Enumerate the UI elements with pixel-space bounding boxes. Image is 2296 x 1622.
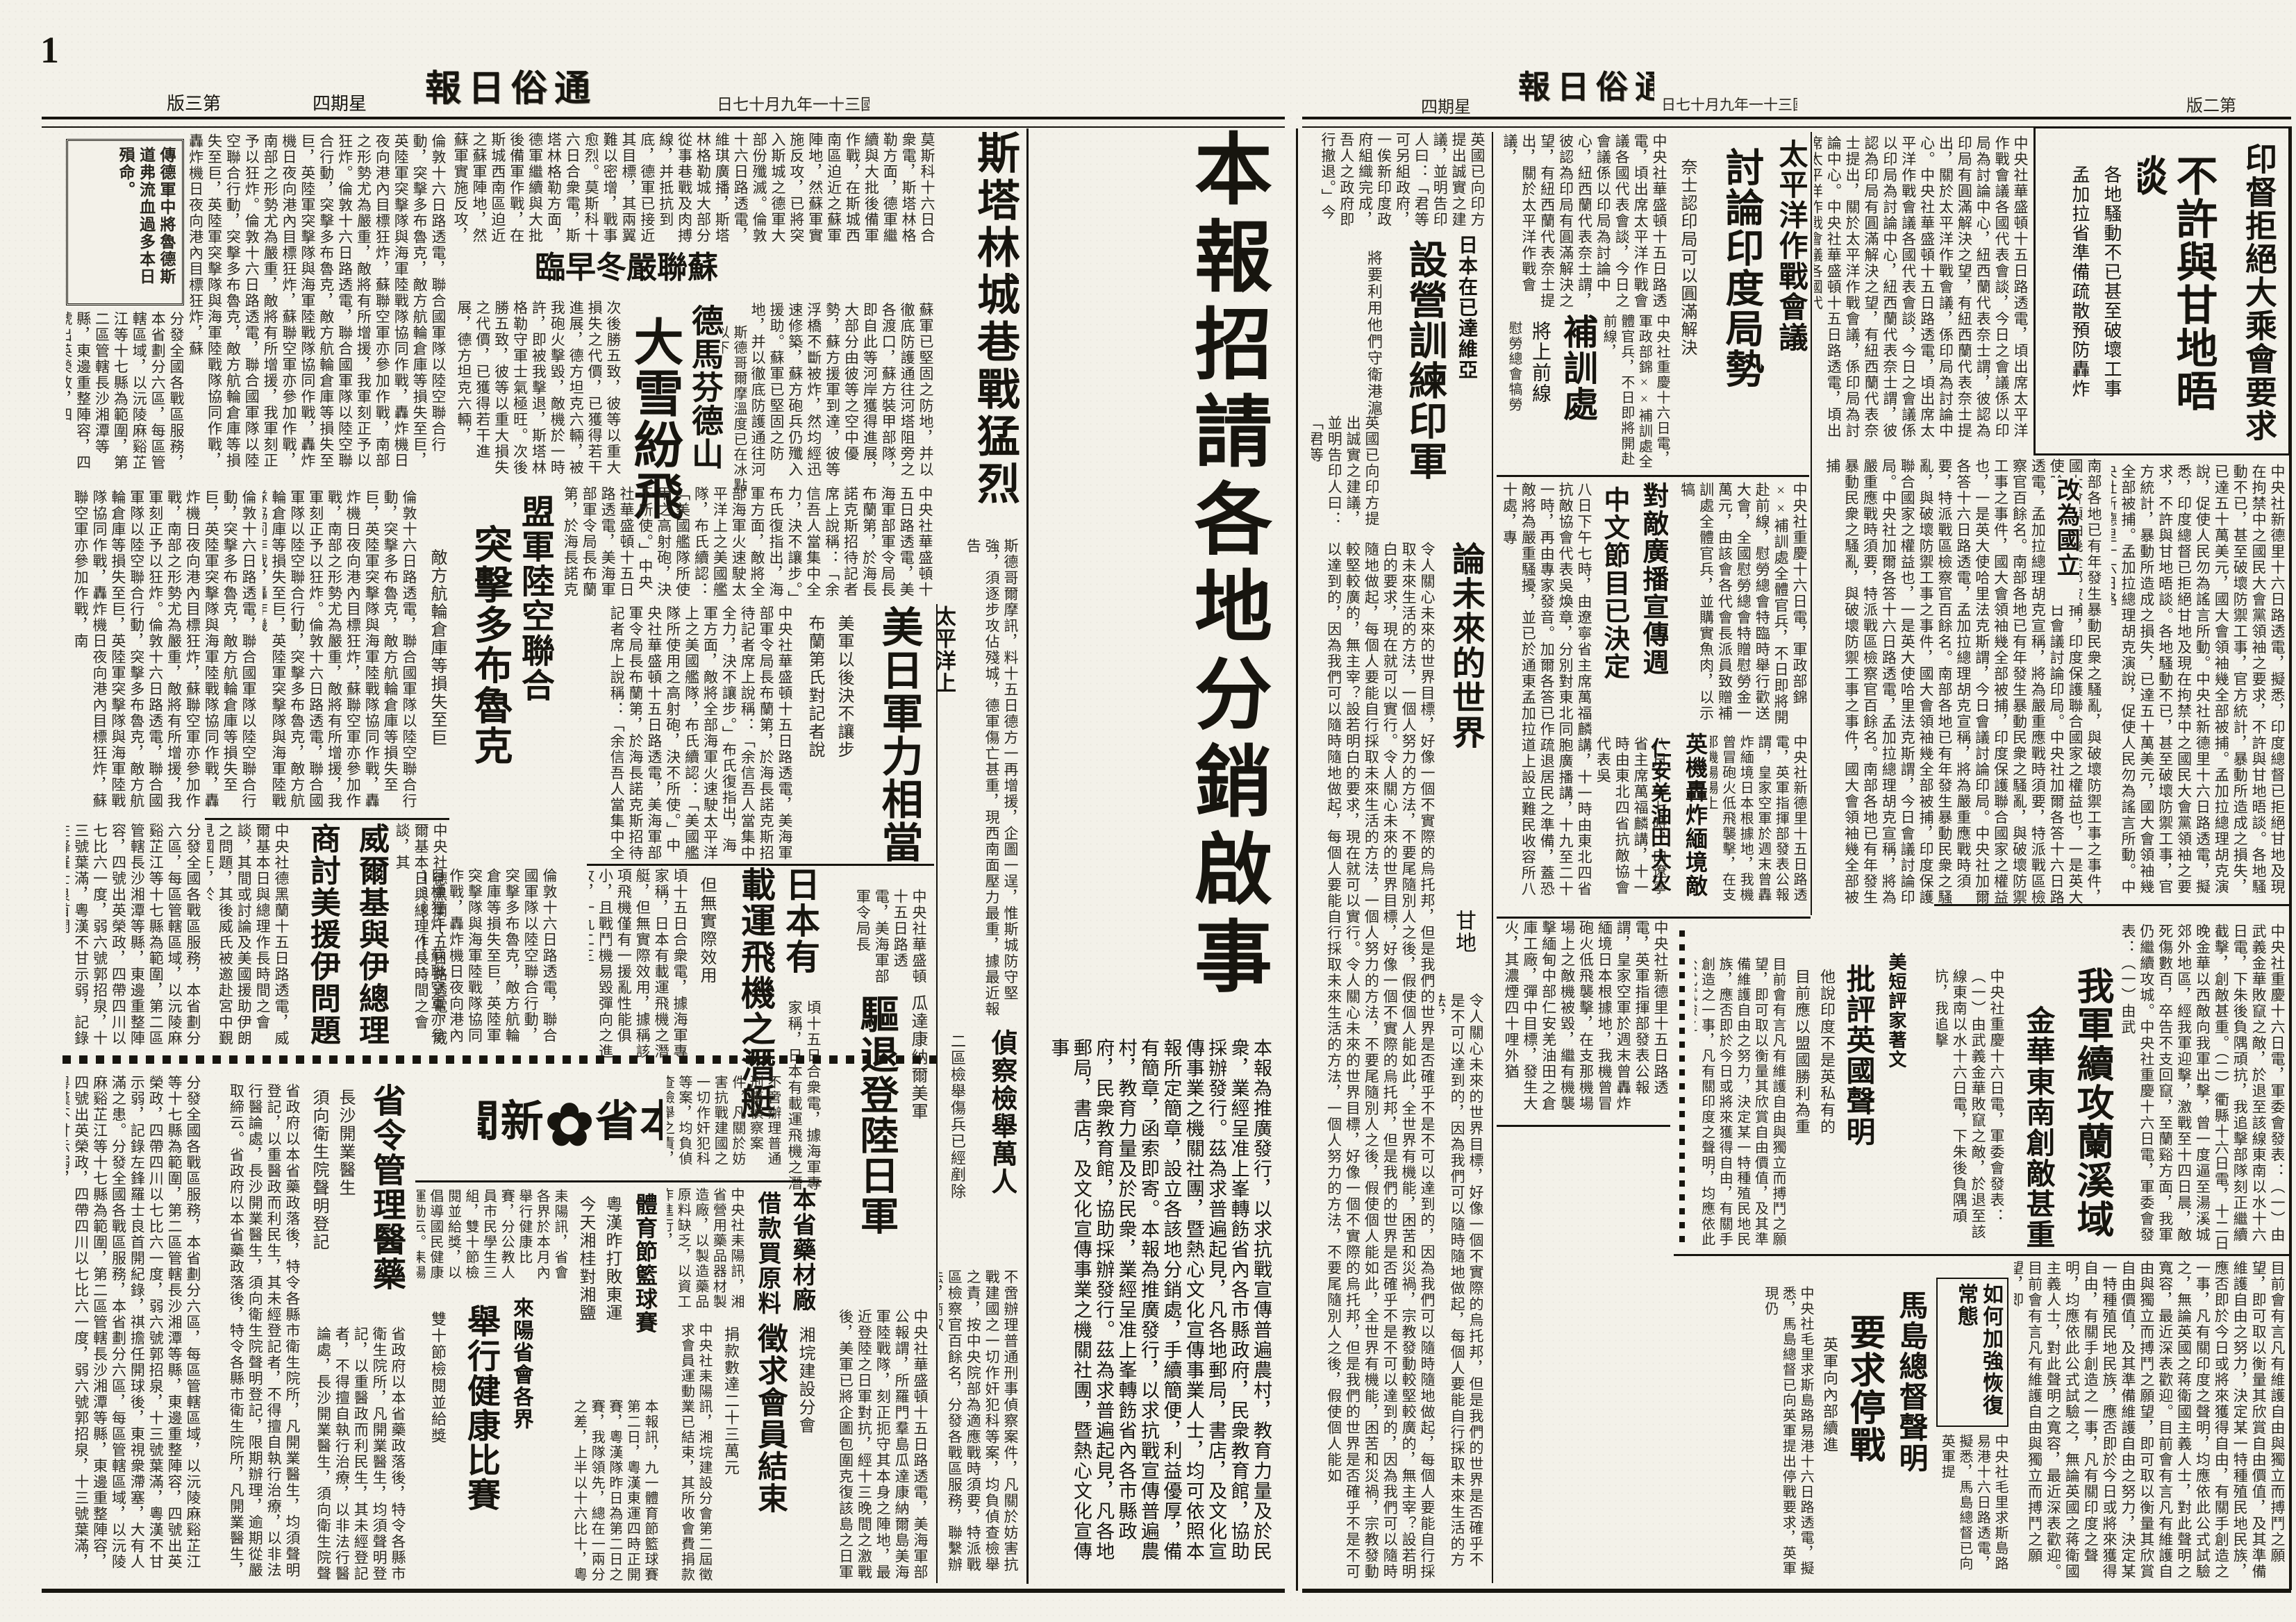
article-body: 中央社重慶十六日電，軍政部錦××補訓處全體官兵，不日即將開赴前線，慰勞總會特臨時… — [1675, 482, 1808, 726]
headline-willkie-premier: 威爾基與伊總理 — [346, 823, 389, 1053]
article-body: 中央社重慶十六日電，軍政部錦××補訓處全體官兵，不日即將開赴前線， — [1601, 314, 1670, 474]
subhead-tobruk-losses: 敵方航輪倉庫等損失至巨 — [422, 549, 447, 828]
article-body: 分發全國各戰區服務，本省劃分六區，每區管轄區域，以沅陵麻谿芷江等十七縣為範圍，第… — [66, 1075, 202, 1583]
section-rule — [205, 818, 449, 820]
page-edge-rule — [1296, 128, 1298, 1591]
section-rule — [415, 1180, 822, 1182]
subhead-changsha-doctors: 長沙開業醫生 — [332, 1089, 356, 1271]
headline-tobruk-raid: 突擊多布魯克 — [453, 524, 513, 859]
headline-jinhua-damage: 金華東南創敵甚重 — [2011, 1005, 2055, 1255]
article-body: 分發全國各戰區服務，本省劃分六區，每區管轄區域，以沅陵麻谿芷江等十七縣為範圍，第… — [66, 311, 185, 483]
headline-national-school: 改為國立 — [2047, 478, 2079, 605]
subhead-no-practical-use: 但無實際效用 — [692, 876, 717, 1072]
article-body: 斯德哥爾摩訊，料十五日德方一再增援，企圖一逞，惟斯城防守堅強，須逐步攻佔殘城，德… — [963, 538, 1020, 1017]
subhead-to-front: 將上前線 — [1526, 321, 1552, 433]
notice-box-restore: 如何加強恢復常態 — [1936, 1278, 2008, 1427]
gutter-rule — [1026, 128, 1029, 1584]
headline-no-gandhi-meeting: 不許與甘地晤談 — [2138, 154, 2218, 451]
headline-allied-joint: 盟軍陸空聯合 — [515, 494, 554, 822]
section-rule — [1497, 1125, 1670, 1127]
headline-attack-lanxi: 我軍續攻蘭溪域 — [2060, 967, 2114, 1253]
article-body: 中央社華盛頓十五日路透電，美海軍部軍令局長布蘭第，於海長諾克斯招待記者席上說稱：… — [587, 605, 794, 861]
headline-japan-has: 日本有 — [779, 867, 821, 993]
subhead-allied-victory-first: 目前應以盟國勝利為重 — [1789, 969, 1811, 1206]
notice-box-death: 傳德軍中將魯德斯道弗流血過多本日殞命。 — [66, 139, 184, 306]
column-rule — [936, 604, 938, 1583]
banner-distribution-notice: 本報招請各地分銷啟事 — [1083, 128, 1272, 1026]
headline-discuss-india: 討論印度局勢 — [1703, 147, 1764, 461]
headline-request-ceasefire: 要求停戰 — [1842, 1314, 1885, 1496]
byline-gandhi: 甘地 — [1448, 910, 1476, 980]
masthead-rule-left — [42, 117, 1285, 128]
subhead-nash-optimism: 奈士認印局可以圓滿解決 — [1672, 158, 1697, 451]
article-body: 倫敦十六日路透電，聯合國軍隊以陸空聯合行動，突擊多布魯克，敵方航輪倉庫等損失至巨… — [189, 133, 447, 480]
article-body: 省政府以本省藥政落後，特令各縣市衛生院所，凡開業醫生，均須聲明登記，以重醫政而利… — [207, 1083, 301, 1583]
headline-us-aid-iran: 商討美援伊問題 — [294, 823, 340, 1059]
badge-local-news-label: 聞新✿省本 — [478, 1096, 663, 1148]
headline-raf-bomb-burma: 英機轟炸緬境敵 — [1675, 733, 1708, 921]
headline-yenangyaung-fire: 仁安羌油田大火 — [1640, 737, 1671, 926]
article-body: 中央社毛里求斯島路易港十六日路透電，擬悉，馬島總督已向英軍提出停戰要求，英軍現仍 — [1764, 1286, 1814, 1583]
bottom-rule-right — [1302, 1589, 2291, 1593]
headline-stalingrad: 斯塔林城巷戰猛烈 — [960, 131, 1020, 533]
column-rule — [1811, 132, 1812, 915]
column-rule — [1492, 132, 1493, 1583]
flower-icon: ✿ — [545, 1094, 595, 1158]
ornament-rule — [1679, 930, 1685, 1250]
kicker-japan-batavia: 日本在已達維亞 — [1450, 235, 1478, 417]
section-rule — [1674, 1254, 2292, 1256]
article-body: 目前會有言凡有維護自由與獨立而搏鬥之願望，即可取以衡量其欣賞自由價值，及其準備維… — [2014, 1260, 2286, 1583]
headline-soviet-winter: 臨早冬嚴聯蘇 — [535, 250, 747, 294]
headline-chinese-program: 中文節目已決定 — [1597, 486, 1629, 730]
article-body: 不啻辦理普通刑事偵察案件，凡關於妨害抗戰建國之一切作奸犯科等案，均負偵查檢舉之責… — [939, 1269, 1020, 1583]
section-rule — [1934, 904, 2292, 906]
headline-madagascar-governor: 馬島總督聲明 — [1888, 1290, 1928, 1535]
article-body: 中央社新德里十五日路透電，英軍指揮部發表公報謂，皇家空軍於週末曾轟炸緬境日本根據… — [1710, 735, 1807, 917]
subhead-comfort-troops: 慰勞總會犒勞 — [1500, 321, 1522, 461]
article-body: 中央社華盛頓十五日路透電，美海軍部軍令局長布蘭第，於海長諾克斯招待記者席上說稱：… — [559, 486, 934, 601]
article-body: 中央社新德里十六日路透電，擬悉，印度總督已拒絕甘地及現在拘禁中之國民大會黨領袖之… — [2111, 464, 2286, 908]
headline-broadcast-week: 對敵廣播宣傳週 — [1633, 482, 1668, 726]
headline-criticize-britain: 批評英國聲明 — [1839, 964, 1875, 1215]
article-body: 頃十五日合衆電，據海軍專家稱，日本有載運飛機之潛 — [779, 1000, 822, 1194]
article-body: 中央社重慶十六日電，軍委會發表：（一）由武義金華敗竄之敵，於退至該線東南以水十六… — [2120, 923, 2286, 1253]
subhead-british-advance: 英軍向內部續進 — [1817, 1337, 1839, 1532]
headline-german-mountain: 德馬芬德山 — [684, 304, 724, 493]
article-body: 中央社華盛頓十五日路透電，頃出席太平洋作戰會議各國代表會談，今日之會議係以印局為… — [1499, 133, 1668, 310]
subhead-india-not-private: 他說印度不是英私有的 — [1814, 969, 1836, 1206]
subhead-today-match: 今天湘桂對湘鹽 — [572, 1196, 596, 1391]
article-body: 八日下午七時，由遼寧省主席萬福麟講，十一時由東北四省抗敵協會代表吳煥章，分別對東… — [1499, 482, 1593, 908]
article-body: 中央社華盛頓十五日路透電，美海軍部公報謂，所羅門羣島瓜達康納爾島美海軍陸戰隊，刻… — [825, 1309, 929, 1583]
date-left: 日七十月九年一十三國民華中 — [717, 94, 870, 118]
subhead-bengal-evacuate: 孟加拉省準備疏散預防轟炸 — [2064, 165, 2090, 447]
badge-local-news: 聞新✿省本 — [478, 1073, 663, 1171]
headline-health-contest: 舉行健康比賽 — [451, 1304, 500, 1582]
subhead-riots-damage: 各地騷動不已甚至破壞工事 — [2096, 165, 2122, 447]
article-body: 莫斯科十六日合衆電，斯塔林格勒方面，德軍繼續與大批後備軍作戰，在斯城西南區迫近之… — [450, 132, 936, 253]
headline-investigate: 偵察檢舉萬人 — [975, 1029, 1017, 1253]
newspaper-scan: 1版三第四期星報日俗通日七十月九年一十三國民華中傳德軍中將魯德斯道弗流血過多本日… — [0, 0, 2296, 1622]
kicker-guadalcanal: 瓜達康納爾美軍 — [903, 994, 928, 1204]
bottom-rule-left — [42, 1589, 1285, 1593]
article-body: 英國已向印方提出誠實之建議，並明告印人曰：「君等可另組政府，一俟新印度政府組織完… — [1311, 132, 1486, 229]
headline-viceroy-refuse: 印督拒絕大乘會要求 — [2227, 142, 2278, 442]
article-body: 倫敦十六日路透電，聯合國軍隊以陸空聯合行動，突擊多布魯克，敵方航輪倉庫等損失至巨… — [263, 490, 418, 821]
article-body: 頃十五日合衆電，據海軍專家稱，日本有載運飛機之潛艇，但無實際效用，據稱該項飛機僅… — [589, 868, 689, 1069]
article-body: 中央社德黑蘭十五日路透電，威爾基本日與總理作長時間之會談，其間或討論及美國援助伊… — [207, 823, 290, 1053]
chain-rule — [63, 1055, 936, 1064]
article-body: 中央社耒陽訊，湘省營用藥品器材製造廠，以製造藥品原料缺乏，以資工作進行， — [667, 1187, 744, 1318]
subhead-yuehan-win: 粵漢昨打敗東運 — [599, 1196, 622, 1391]
headline-train-indian-army: 設營訓練印軍 — [1388, 240, 1447, 533]
subhead-us-no-concede: 美軍以後決不讓步 — [828, 614, 854, 824]
section-rule — [1497, 475, 1809, 477]
subhead-register-clinic: 須向衛生院聲明登記 — [306, 1089, 329, 1319]
masthead-left: 報日俗通 — [425, 68, 592, 119]
subhead-stockholm-temp: 斯德哥爾摩溫度已在冰點以下 — [722, 325, 747, 493]
article-body: 耒陽訊，省會各界於本月內舉行健康比賽，分公教人員市民學生三組，雙十節檢閱並給獎，… — [417, 1189, 568, 1293]
masthead-right: 報日俗通 — [1518, 68, 1654, 118]
banner-notice-body: 本報為推廣發行，以求抗戰宣傳普遍農村，教育力量及於民衆，業經呈准上峯轉飭省內各市… — [1036, 1038, 1272, 1574]
article-body: 分發全國各戰區服務，本省劃分六區，每區管轄區域，以沅陵麻谿芷江等十七縣為範圍，第… — [66, 823, 202, 1053]
page-number: 1 — [40, 28, 89, 81]
edition-right-label: 版二第 — [2186, 96, 2258, 118]
subhead-second-district: 二區檢舉傷兵已經剷除 — [943, 1033, 967, 1264]
article-body: 本報訊，九一體育節籃球賽第二日，粵漢東運四時正開賽，粵漢隊昨日為第二日之賽，我隊… — [549, 1399, 658, 1583]
article-body: 中央社新德里十五日路透電，英軍指揮部發表公報謂，皇家空軍於週末曾轟炸緬境日本根據… — [1499, 920, 1670, 1121]
article-body: 中央社華盛頓十五日路透電，頃出席太平洋作戰會議各國代表會談，今日之會議係以印局為… — [1814, 135, 2029, 451]
article-body: 倫敦十六日路透電，聯合國軍隊以陸空聯合行動，突擊多布魯克，敵方航輪倉庫等損失至巨… — [66, 490, 258, 821]
section-rule — [587, 864, 934, 866]
kicker-us-commentator: 美短評家著文 — [1877, 953, 1907, 1107]
article-body: 英國已向印方提出誠實之建議，並明告印人曰：「君等 — [1311, 415, 1381, 537]
section-rule — [1497, 917, 1811, 919]
article-body: 蘇軍已堅固之防地，并以徹底防護通往河塔阻旁之各渡口，蘇方裝甲部隊，即自此等河岸獲… — [750, 302, 935, 484]
kicker-pacific: 太平洋上 — [929, 605, 956, 732]
headline-loan-materials: 借款買原料 — [750, 1191, 781, 1324]
headline-us-japan-power: 美日軍力相當 — [860, 605, 924, 885]
headline-membership-drive: 徵求會員結束 — [744, 1323, 788, 1559]
article-body: 中央社毛里求斯島路易港十六日路透電，擬悉，馬島總督已向英軍提 — [1936, 1434, 2008, 1583]
article-body: 中央社重慶十六日電，軍委會發表：（一）由武義金華敗竄之敵，於退至該線東南以水十六… — [1936, 969, 2006, 1253]
headline-pacific-council: 太平洋作戰會議 — [1767, 139, 1808, 432]
article-body: 令人關心未來的世界目標，好像一個不實際的烏托邦，但是我們的世界是否確乎不是不可以… — [1439, 993, 1485, 1583]
article-body: 倫敦十六日路透電，聯合國軍隊以陸空聯合行動，突擊多布魯克，敵方航輪倉庫等損失至巨… — [422, 868, 558, 1050]
weekday-left-label: 四期星 — [313, 93, 382, 119]
article-body: 省政府以本省藥政落後，特令各縣市衛生院所，凡開業醫生，均須聲明登記，以重醫政而利… — [304, 1326, 407, 1583]
edition-left-label: 版三第 — [167, 93, 243, 119]
headline-future-world: 論未來的世界 — [1439, 542, 1485, 897]
article-body: 目前會有言凡有維護自由與獨立而搏鬥之願望，即可取以衡量其欣賞自由價值，及其準備維… — [1695, 957, 1786, 1254]
headline-training-office: 補訓處 — [1556, 314, 1599, 447]
subhead-brand-statement: 布蘭第氏對記者說 — [799, 614, 825, 824]
headline-repel-landing: 驅退登陸日軍 — [832, 994, 899, 1301]
article-body: 次後勝五致，彼等以重大損失之代價，已獲得若干進展，德方坦克六輛，被我砲火擊毀，敵… — [450, 300, 622, 483]
article-body: 令人關心未來的世界目標，好像一個不實際的烏托邦，但是我們的世界是否確乎不是不可以… — [1311, 542, 1436, 1583]
page-edge-rule — [2289, 126, 2292, 1590]
date-right: 日七十月九年一十三國民華中 — [1661, 96, 1797, 118]
headline-sports-basketball: 體育節籃球賽 — [626, 1193, 658, 1368]
kicker-xiangyuan-branch: 湘垸建設分會 — [792, 1326, 815, 1473]
kicker-leiyang: 來陽省會各界 — [503, 1297, 533, 1479]
headline-medicine-factory: 本省藥材廠 — [783, 1187, 815, 1321]
subhead-double-ten: 雙十節檢閱並給獎 — [425, 1311, 447, 1521]
article-body: 不啻辦理普通刑事偵察案件，凡關於妨害抗戰建國之一切作奸犯科等案，均負偵查檢舉之責… — [667, 1075, 781, 1176]
article-body: 中央社華盛頓十五日路透電，美海軍部軍令局長 — [856, 889, 928, 992]
subhead-donation-total: 捐款數達二十三萬元 — [717, 1326, 740, 1536]
article-body: 中央社耒陽訊，湘垸建設分會第二屆徵求會員運動業已結束，其所收會費捐款 — [665, 1323, 713, 1583]
